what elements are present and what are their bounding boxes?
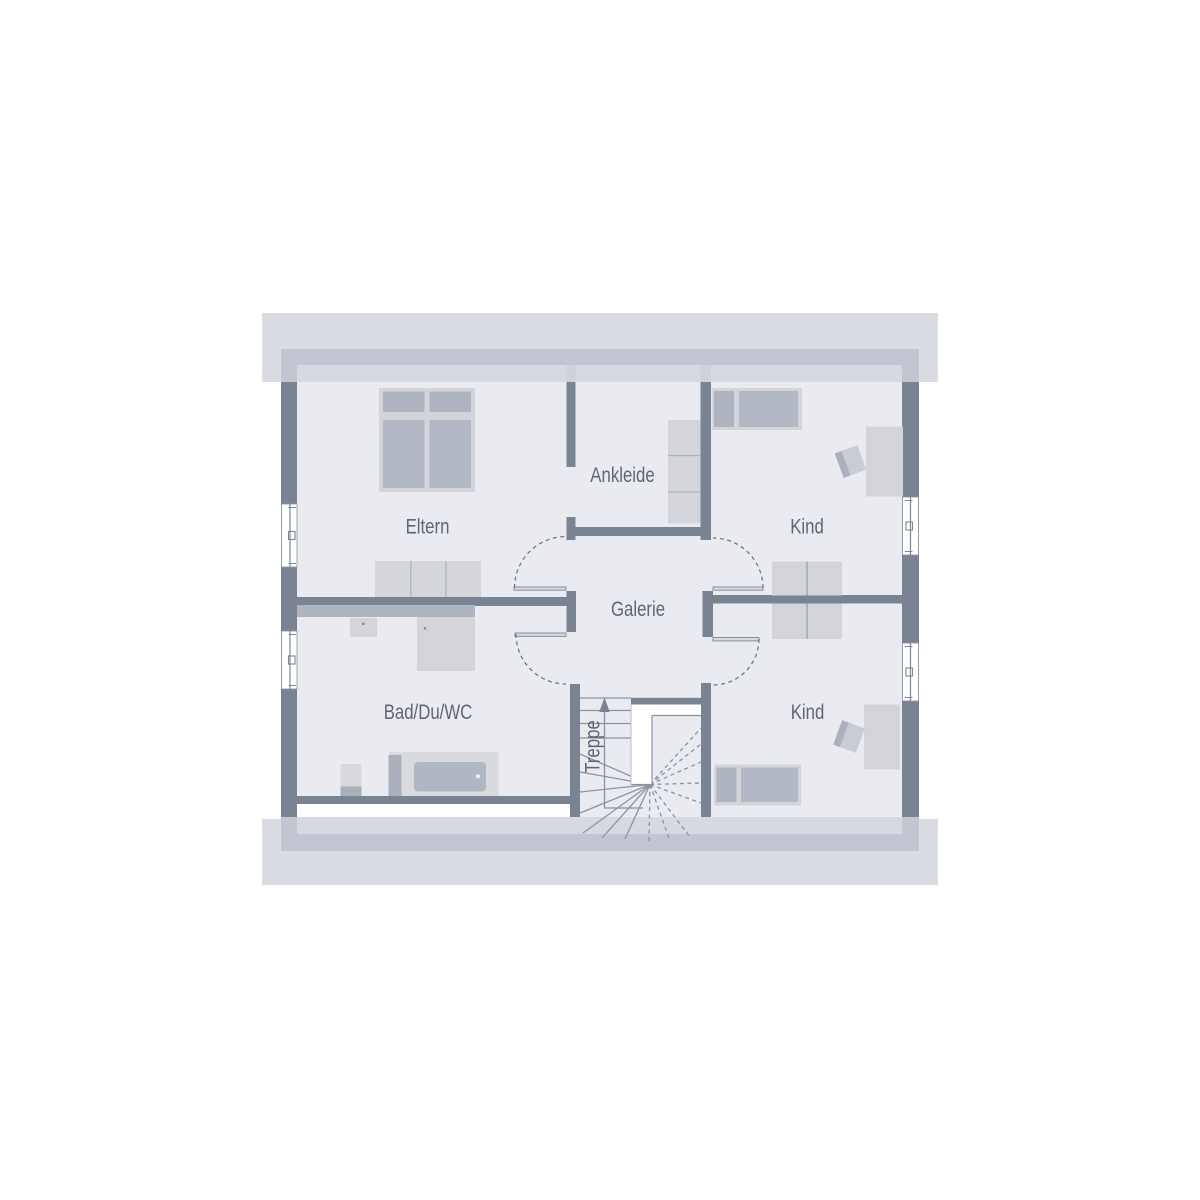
svg-text:Bad/Du/WC: Bad/Du/WC bbox=[384, 701, 473, 724]
svg-text:Eltern: Eltern bbox=[406, 516, 450, 539]
svg-text:Ankleide: Ankleide bbox=[590, 464, 654, 487]
svg-text:Kind: Kind bbox=[790, 516, 824, 539]
svg-text:Galerie: Galerie bbox=[611, 598, 665, 621]
svg-text:Kind: Kind bbox=[791, 701, 825, 724]
svg-text:Treppe: Treppe bbox=[582, 720, 605, 773]
